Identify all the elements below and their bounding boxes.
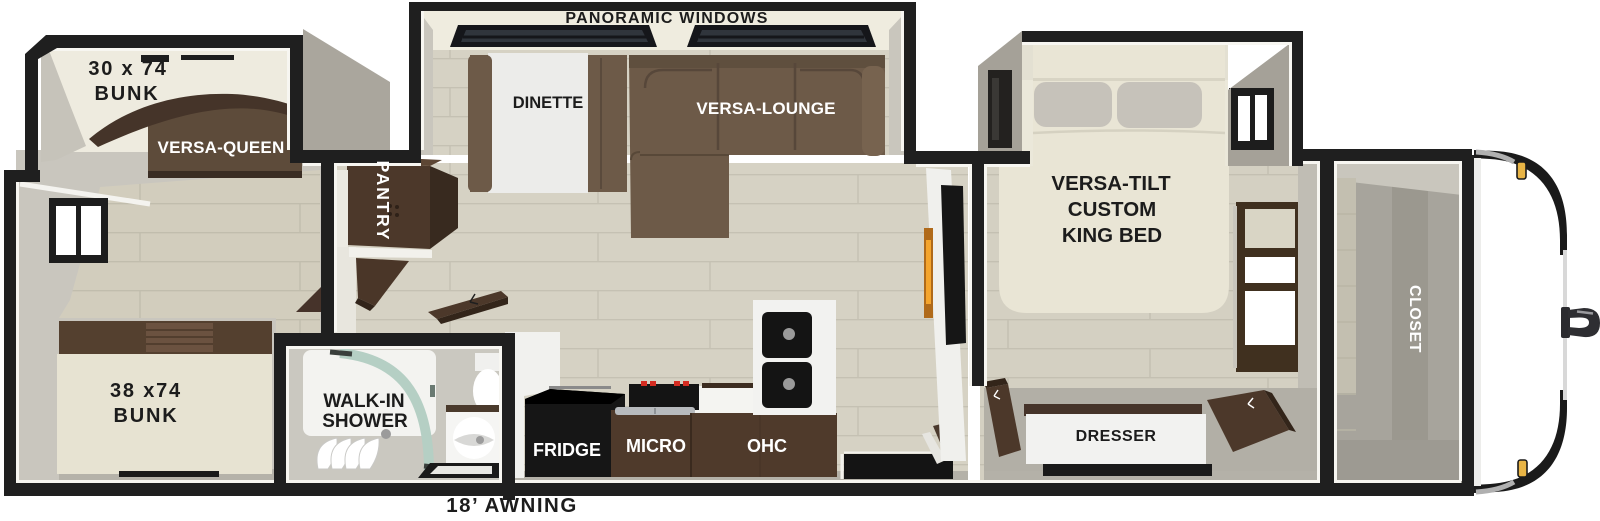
svg-text:38 x74: 38 x74 [110,380,182,402]
svg-text:FRIDGE: FRIDGE [533,440,601,460]
svg-text:30 x 74: 30 x 74 [88,58,167,80]
svg-text:CLOSET: CLOSET [1406,285,1423,353]
svg-text:PANTRY: PANTRY [373,161,393,242]
svg-text:BUNK: BUNK [95,83,160,105]
svg-text:VERSA-LOUNGE: VERSA-LOUNGE [696,99,835,118]
svg-text:VERSA-QUEEN: VERSA-QUEEN [158,138,285,157]
svg-text:18’ AWNING: 18’ AWNING [446,494,578,516]
svg-text:BUNK: BUNK [114,405,179,427]
svg-text:MICRO: MICRO [626,436,686,456]
svg-text:WALK-IN: WALK-IN [323,391,404,412]
svg-text:PANORAMIC WINDOWS: PANORAMIC WINDOWS [565,10,768,27]
svg-text:DINETTE: DINETTE [513,94,584,112]
svg-text:SHOWER: SHOWER [322,411,408,432]
svg-text:CUSTOM: CUSTOM [1068,198,1156,221]
svg-text:VERSA-TILT: VERSA-TILT [1051,172,1171,195]
svg-text:KING BED: KING BED [1062,224,1162,247]
svg-text:DRESSER: DRESSER [1076,428,1157,445]
svg-text:OHC: OHC [747,436,787,456]
